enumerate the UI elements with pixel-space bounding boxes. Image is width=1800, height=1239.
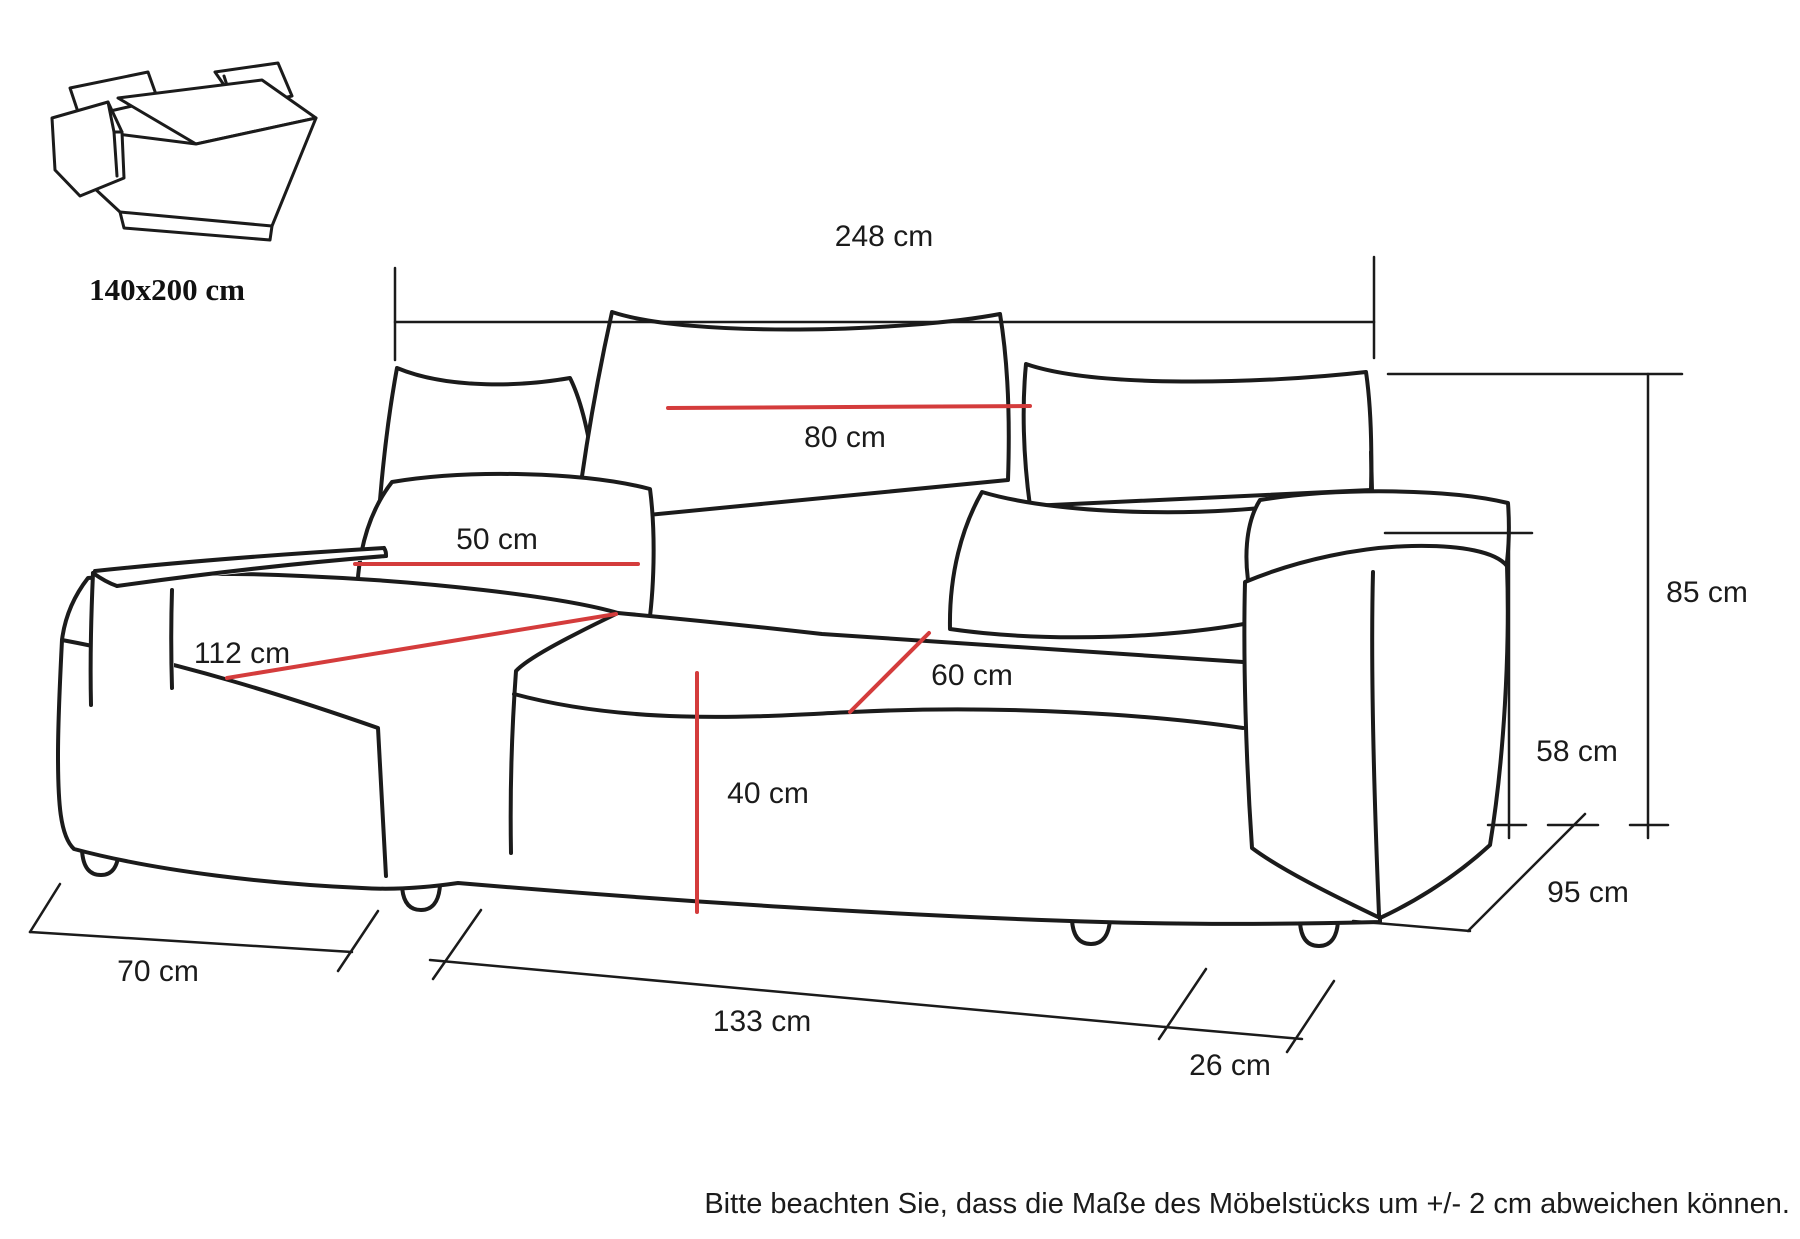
left-armrest-tip (384, 548, 386, 556)
dim-line-armrest-width (1165, 1027, 1302, 1039)
dim-label-front-width: 133 cm (713, 1007, 811, 1037)
dim-label-chaise-depth: 112 cm (194, 639, 290, 669)
inset-armrest-left (52, 102, 124, 196)
dim-label-armrest-height: 58 cm (1536, 737, 1618, 767)
dim-label-chaise-width: 70 cm (117, 957, 199, 987)
dim-label-total-width: 248 cm (835, 222, 933, 252)
dim-tick-chaise-width-left (30, 884, 60, 932)
dim-tick-chaise-width-right (338, 911, 378, 971)
back-cushion-right (1024, 364, 1372, 506)
dim-ext-depth-bottom (1353, 921, 1470, 931)
furniture-dimension-diagram: 140x200 cm 248 cm 80 cm 50 cm 112 cm 60 … (0, 0, 1800, 1239)
dim-label-armrest-width: 26 cm (1189, 1051, 1271, 1081)
tolerance-note: Bitte beachten Sie, dass die Maße des Mö… (704, 1188, 1790, 1221)
dim-label-depth: 95 cm (1547, 878, 1629, 908)
left-armrest-end-edge (91, 573, 93, 705)
dim-label-total-height: 85 cm (1666, 578, 1748, 608)
dim-line-chaise-width (30, 932, 352, 952)
sofa-bed-inset-drawing (52, 63, 316, 240)
dim-label-back-cushion-width: 80 cm (804, 423, 886, 453)
dim-line-back-cushion-width (668, 406, 1030, 408)
dim-tick-armrest-width-right (1287, 981, 1334, 1052)
sofa-line-drawing (0, 0, 1800, 1239)
dim-label-small-cushion-width: 50 cm (456, 525, 538, 555)
inset-bed-size-label: 140x200 cm (89, 272, 245, 308)
dim-label-seat-height: 40 cm (727, 779, 809, 809)
dim-label-seat-cushion-width: 60 cm (931, 661, 1013, 691)
dim-tick-front-width-left (433, 910, 481, 979)
left-armrest-corner-edge (171, 590, 172, 688)
